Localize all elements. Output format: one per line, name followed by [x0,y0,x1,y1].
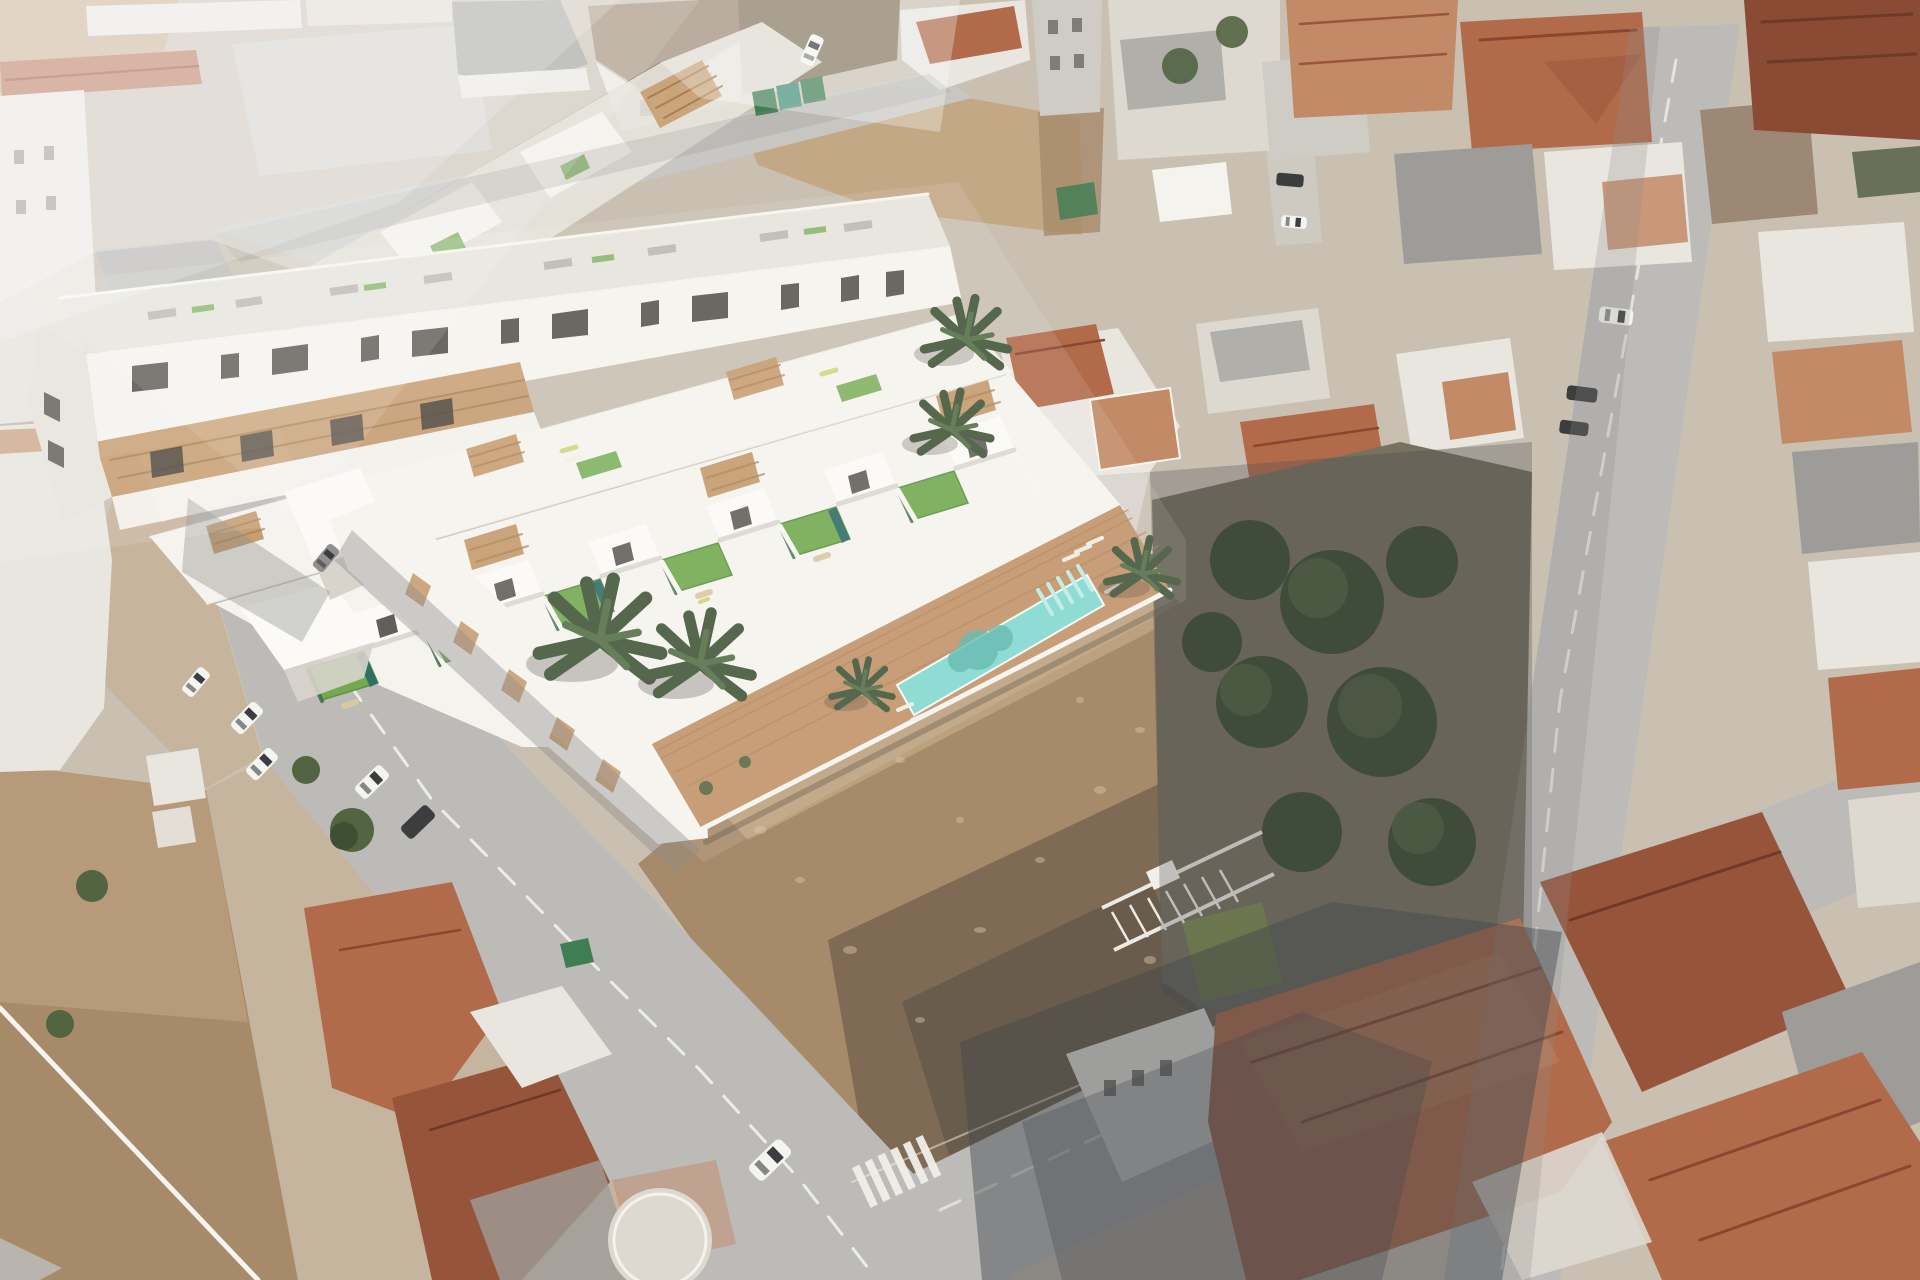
tree-top-2 [1216,16,1248,48]
tall-pale-building [1032,0,1102,116]
white-pavilion [1152,162,1232,222]
right-block-3 [1792,442,1920,554]
gray-roof-top [1394,144,1542,264]
bl-tree-dark [330,822,358,850]
right-block-1 [1758,222,1914,342]
cluster-house-3-tiles [1442,372,1516,440]
aerial-photo [0,0,1920,1280]
right-block-6 [1848,792,1920,908]
white-car-alley [1281,215,1307,229]
green-tarp [1056,182,1098,220]
hedge-top-right [1852,146,1920,198]
dark-car-alley [1276,172,1304,187]
tree-top-1 [1162,48,1198,84]
scene-svg [0,0,1920,1280]
right-block-4 [1808,552,1920,670]
white-shed-small-2 [152,806,196,848]
right-block-5 [1828,668,1920,790]
right-block-2 [1772,340,1912,444]
white-shed-small-1 [146,748,206,806]
